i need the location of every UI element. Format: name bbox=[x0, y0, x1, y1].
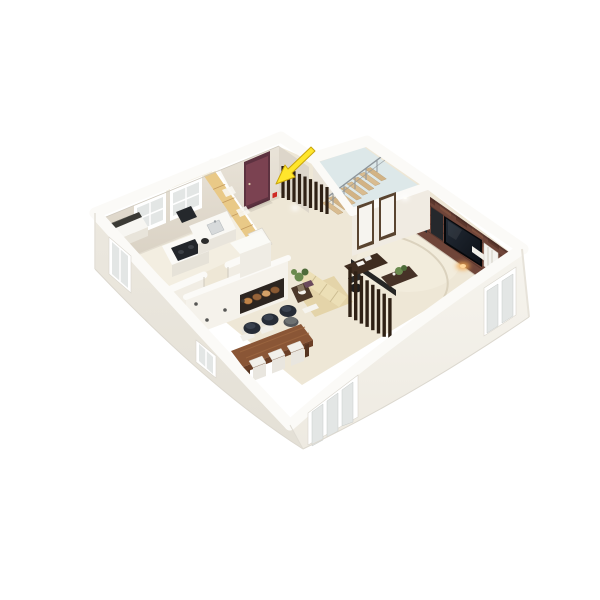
pendant-lamp bbox=[244, 322, 261, 334]
interior-door-2 bbox=[379, 192, 396, 241]
entry-sconce bbox=[291, 206, 299, 211]
pendant-lamp bbox=[262, 314, 279, 326]
door-handle bbox=[248, 183, 250, 185]
floor-plan-image bbox=[0, 0, 600, 600]
floor-plan-svg bbox=[0, 0, 600, 600]
interior-door-1 bbox=[357, 200, 374, 250]
pendant-lamp bbox=[280, 305, 297, 317]
bar-stool bbox=[201, 238, 209, 244]
